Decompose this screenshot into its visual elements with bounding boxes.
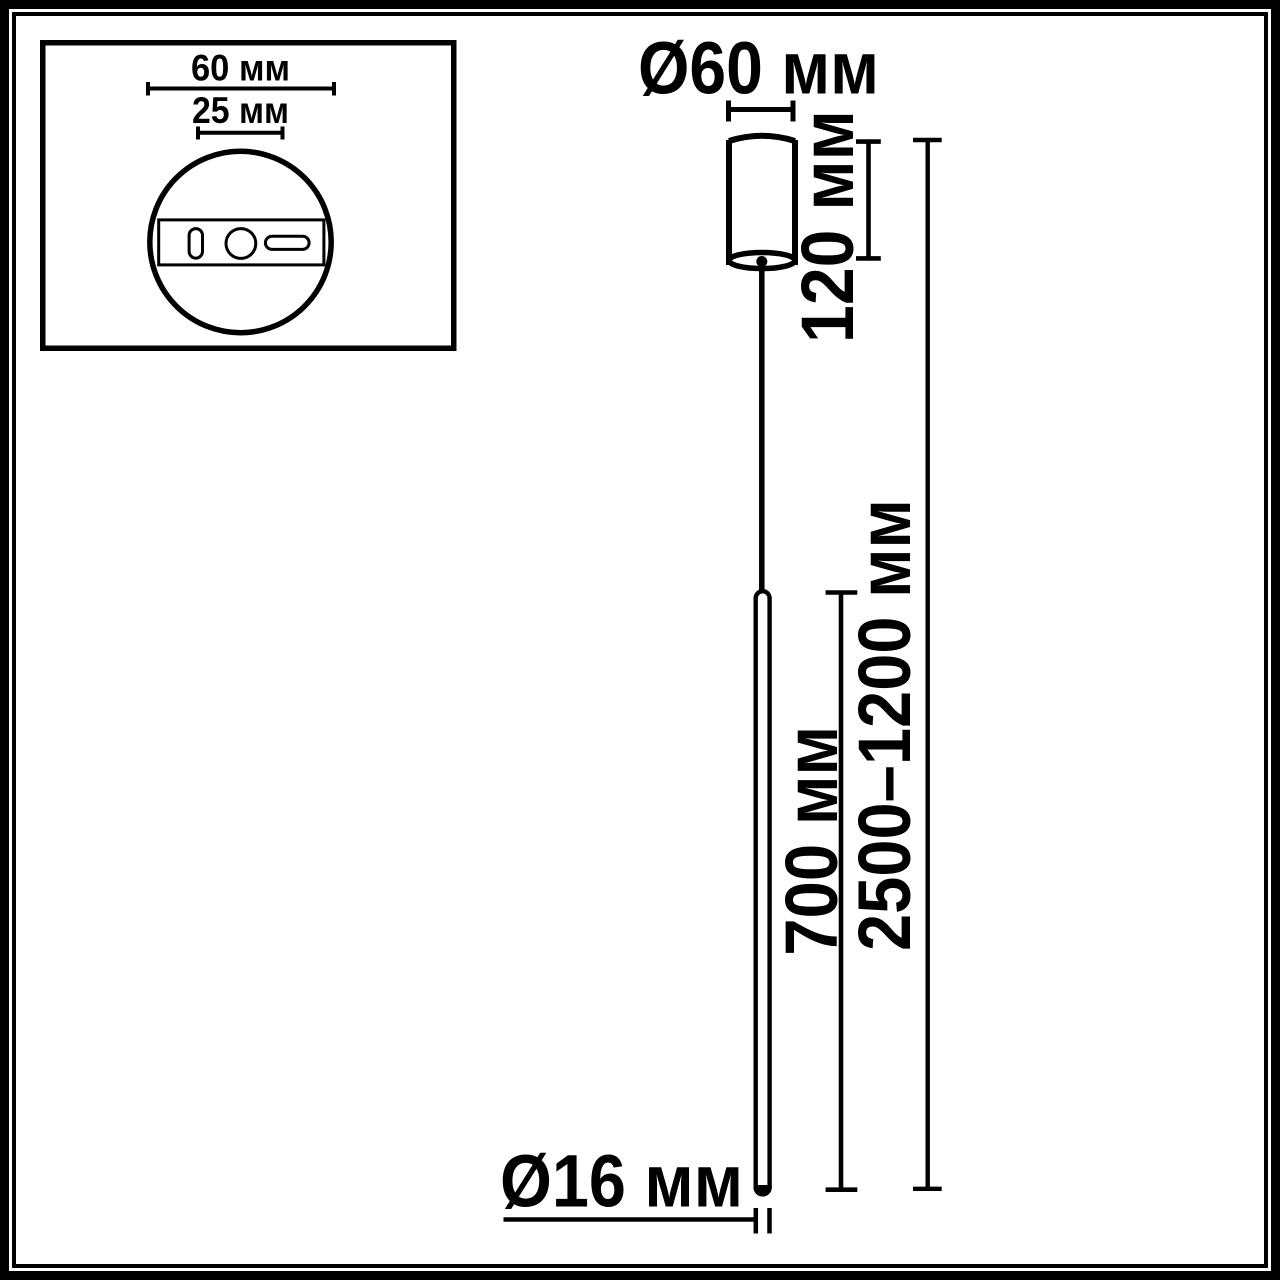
svg-text:Ø60 мм: Ø60 мм bbox=[638, 27, 879, 110]
svg-text:2500–1200 мм: 2500–1200 мм bbox=[843, 499, 926, 951]
svg-text:120 мм: 120 мм bbox=[786, 110, 869, 343]
svg-text:60 мм: 60 мм bbox=[191, 47, 290, 88]
svg-text:Ø16 мм: Ø16 мм bbox=[500, 1139, 743, 1222]
svg-text:25 мм: 25 мм bbox=[192, 90, 289, 131]
